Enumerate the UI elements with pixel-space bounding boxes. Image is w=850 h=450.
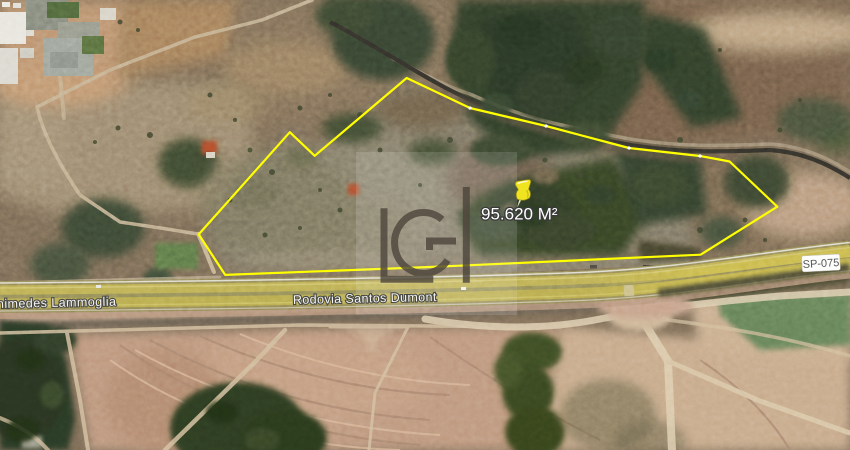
svg-text:himedes Lammoglia: himedes Lammoglia [0, 295, 117, 311]
svg-text:95.620 M²: 95.620 M² [481, 205, 558, 224]
svg-text:SP-075: SP-075 [802, 257, 839, 271]
